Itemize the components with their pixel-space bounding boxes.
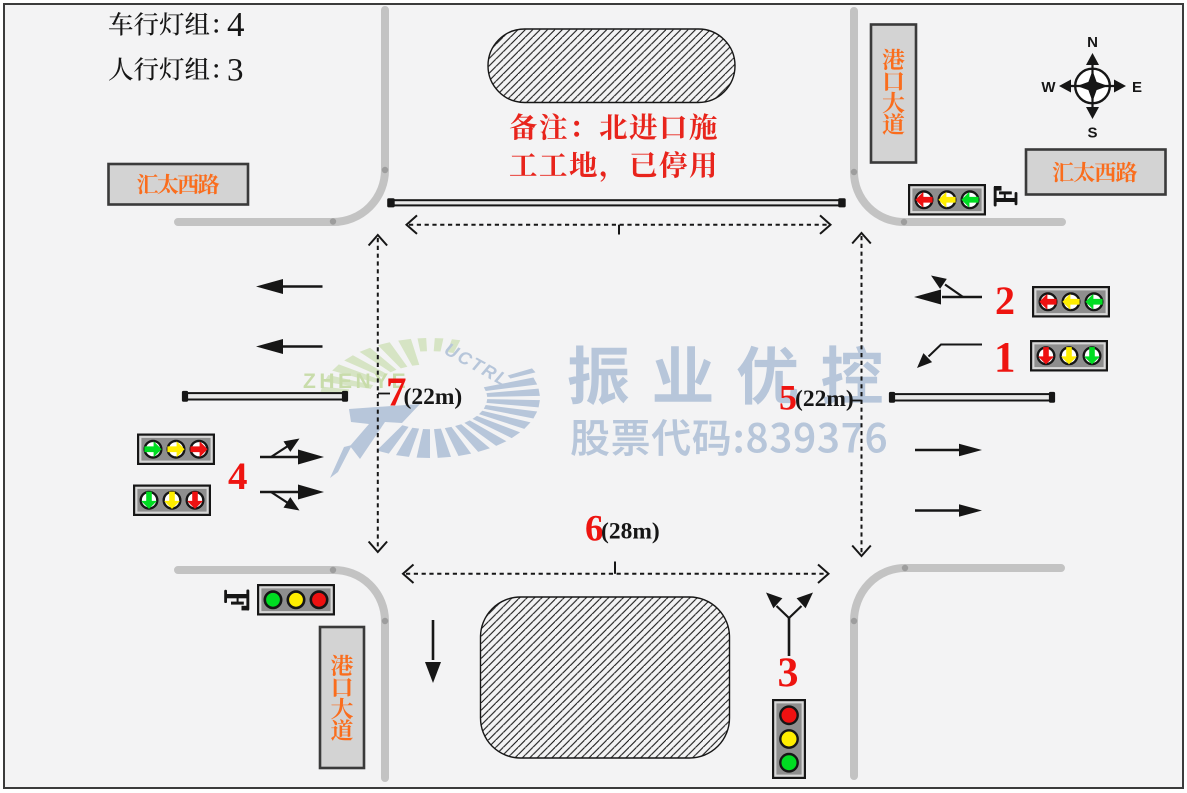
svg-text:4: 4 [227,5,245,44]
svg-text:(28m): (28m) [601,519,660,545]
svg-text:E: E [1132,79,1142,96]
svg-text:S: S [1087,125,1097,142]
svg-text:N: N [1087,34,1098,51]
svg-text:3: 3 [227,53,244,89]
svg-text:4: 4 [228,455,248,498]
svg-text:1: 1 [994,335,1016,382]
svg-text:(22m): (22m) [795,386,854,412]
svg-text:3: 3 [778,651,799,697]
svg-text:2: 2 [995,278,1015,323]
svg-text:(22m): (22m) [404,384,463,410]
svg-text:W: W [1041,79,1056,96]
